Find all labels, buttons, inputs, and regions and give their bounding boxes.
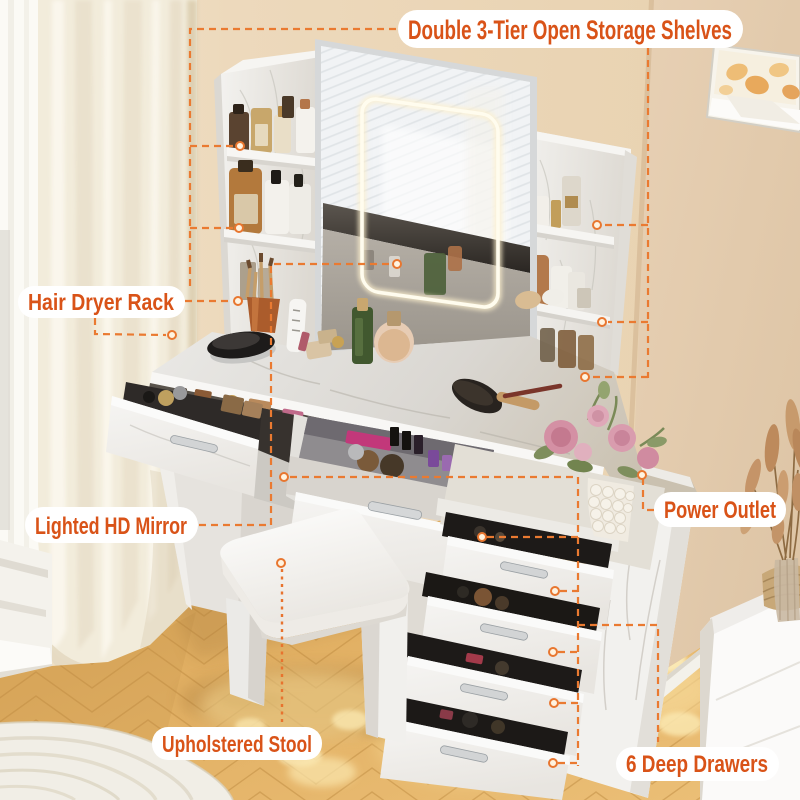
svg-text:Upholstered Stool: Upholstered Stool — [162, 731, 312, 757]
svg-text:Hair Dryer Rack: Hair Dryer Rack — [28, 289, 174, 315]
svg-text:Double 3-Tier Open Storage She: Double 3-Tier Open Storage Shelves — [408, 15, 732, 45]
svg-text:Lighted HD Mirror: Lighted HD Mirror — [35, 513, 187, 540]
svg-text:6 Deep Drawers: 6 Deep Drawers — [626, 751, 768, 778]
svg-text:Power Outlet: Power Outlet — [664, 497, 776, 524]
